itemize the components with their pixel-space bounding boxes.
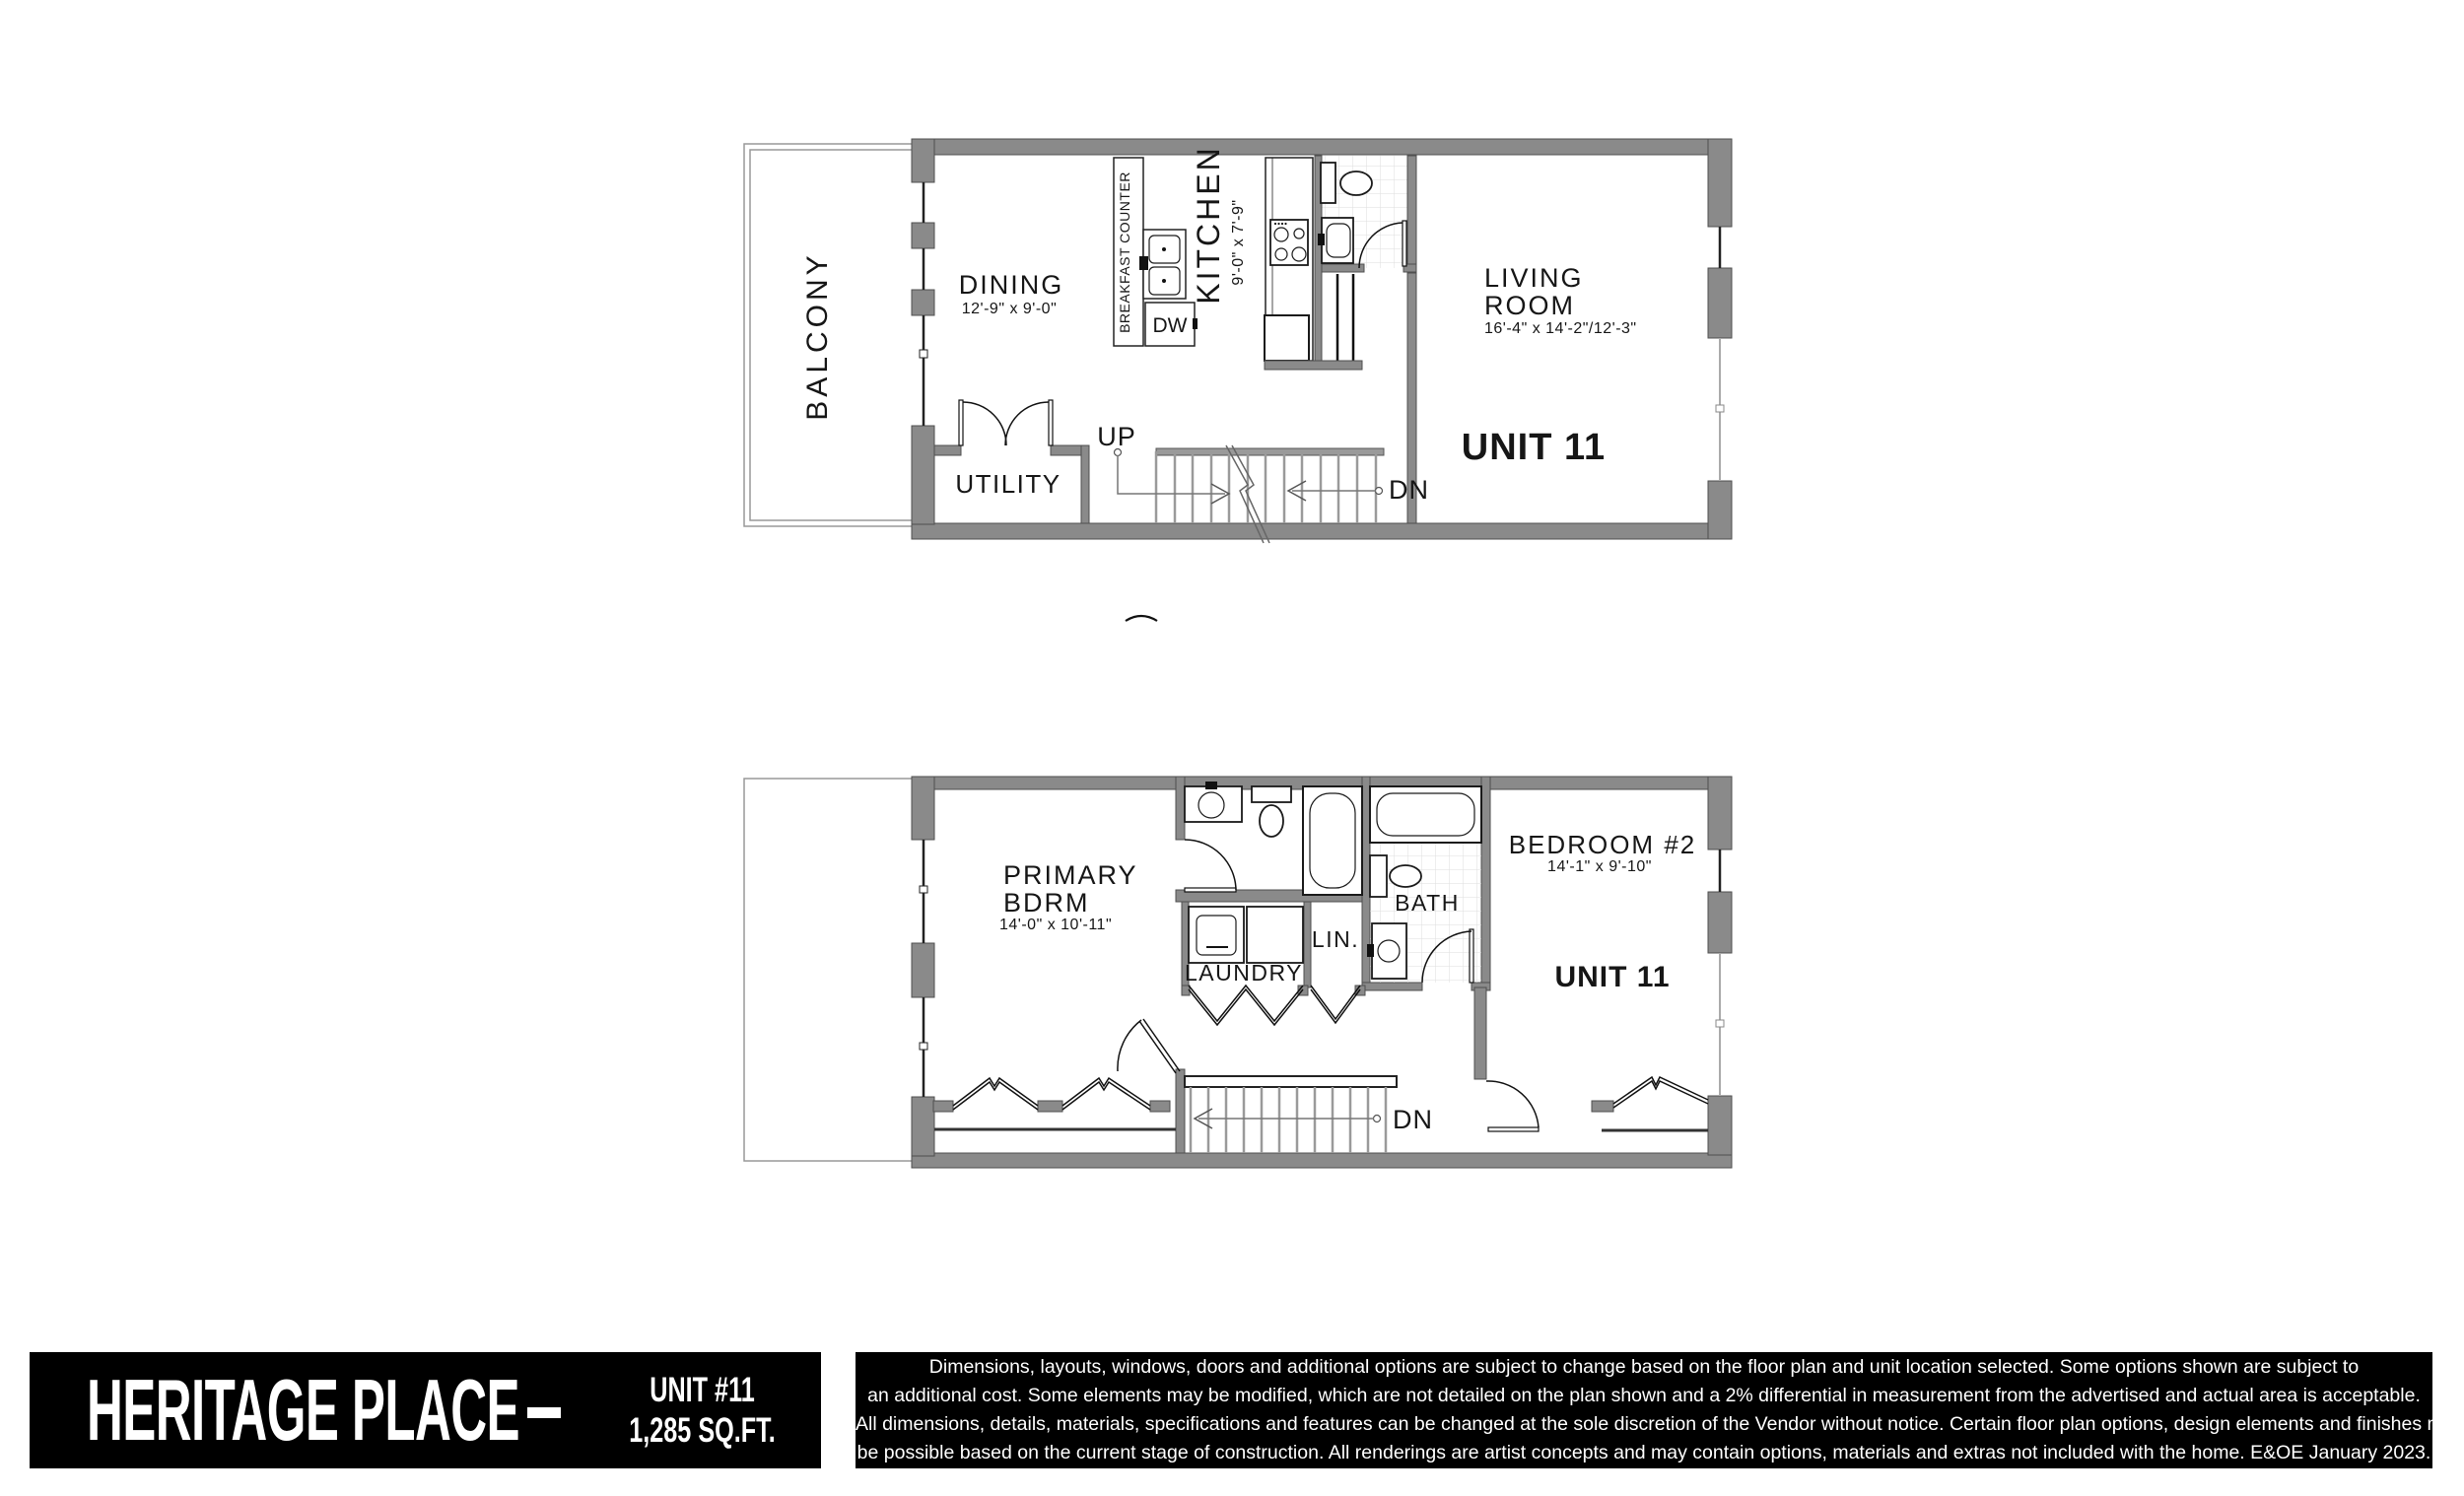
dn-label: DN [1393,1105,1433,1134]
bedroom2-label: BEDROOM #2 [1509,830,1697,859]
kitchen-label: KITCHEN [1191,145,1226,304]
faucet-icon [1318,234,1325,245]
dishwasher-label: DW [1153,314,1188,337]
up-label: UP [1097,422,1136,451]
living-label-1: LIVING [1484,263,1584,293]
laundry-label: LAUNDRY [1185,960,1303,986]
bedroom2-dims: 14'-1" x 9'-10" [1547,858,1652,875]
disclaimer-line: an additional cost. Some elements may be… [856,1382,2432,1410]
stair-swing-mark [1114,603,1173,629]
kitchen-counter [1265,158,1313,361]
unit-label-floor2: UNIT 11 [1554,961,1670,993]
ensuite-tub [1303,786,1362,895]
living-label-2: ROOM [1484,291,1575,320]
disclaimer-line: be possible based on the current stage o… [856,1439,2432,1467]
disclaimer-line: Dimensions, layouts, windows, doors and … [856,1353,2432,1382]
balcony-label: BALCONY [801,251,834,420]
main-bath [1367,786,1481,983]
toilet-bowl [1340,171,1372,195]
utility-label: UTILITY [955,469,1061,499]
dryer [1247,907,1303,963]
utility-door-leaf [1049,400,1053,445]
primary-label-2: BDRM [1003,888,1090,918]
staircase [1185,1076,1397,1153]
primary-label-1: PRIMARY [1003,860,1138,890]
unit-area-label: 1,285 SQ.FT. [623,1410,783,1451]
bifold-doors [1182,986,1365,1025]
unit-number-label: UNIT #11 [623,1370,783,1410]
bedroom2-door [1486,1081,1539,1131]
living-dims: 16'-4" x 14'-2"/12'-3" [1484,320,1637,337]
dining-dims: 12'-9" x 9'-0" [962,301,1058,317]
dining-label: DINING [959,270,1064,300]
primary-dims: 14'-0" x 10'-11" [999,917,1112,933]
floor2-plan: PRIMARY BDRM 14'-0" x 10'-11" LAUNDRY LI… [729,767,1774,1192]
brand-title: HERITAGE PLACE [87,1360,519,1461]
toilet-tank [1370,855,1387,897]
powder-door-leaf [1403,221,1406,266]
linen-label: LIN. [1312,926,1359,952]
dn-arrow-origin [1376,488,1383,495]
faucet-icon [1367,944,1374,957]
laundry-room [1189,907,1303,963]
toilet-bowl [1260,805,1283,837]
powder-room [1315,156,1416,370]
ensuite-bath [1185,782,1362,895]
kitchen-dims: 9'-0" x 7'-9" [1230,199,1247,285]
ensuite-sink-counter [1185,786,1242,822]
disclaimer-line: All dimensions, details, materials, spec… [856,1410,2432,1439]
toilet-tank [1252,786,1291,802]
dn-arrow-origin [1374,1116,1381,1122]
unit-label-floor1: UNIT 11 [1462,427,1606,468]
ensuite-door-leaf [1185,888,1236,892]
toilet-tank [1321,163,1335,203]
disclaimer-bar: Dimensions, layouts, windows, doors and … [856,1352,2432,1468]
bath-label: BATH [1395,890,1460,916]
toilet-bowl [1390,865,1421,887]
roof-outline [744,779,912,1161]
floor1-plan: BALCONY DINING 12'-9" x 9'-0" BREAKFAST … [729,126,1774,562]
utility-door-leaf [959,400,963,445]
bath-sink [1372,923,1406,979]
brand-separator [527,1407,561,1418]
utility-room [934,400,1089,523]
faucet-icon [1139,256,1148,270]
dn-label: DN [1389,475,1429,505]
primary-door [1118,1019,1180,1073]
floorplan-sheet: { "colors": { "wall": "#8a8a8a", "bar_bg… [0,0,2464,1496]
breakfast-counter-label: BREAKFAST COUNTER [1117,171,1132,333]
bath-door-leaf [1470,929,1473,983]
faucet-icon [1205,782,1217,789]
stove [1270,220,1308,265]
fridge [1265,315,1309,361]
brand-bar: HERITAGE PLACE UNIT #11 1,285 SQ.FT. [30,1352,821,1468]
